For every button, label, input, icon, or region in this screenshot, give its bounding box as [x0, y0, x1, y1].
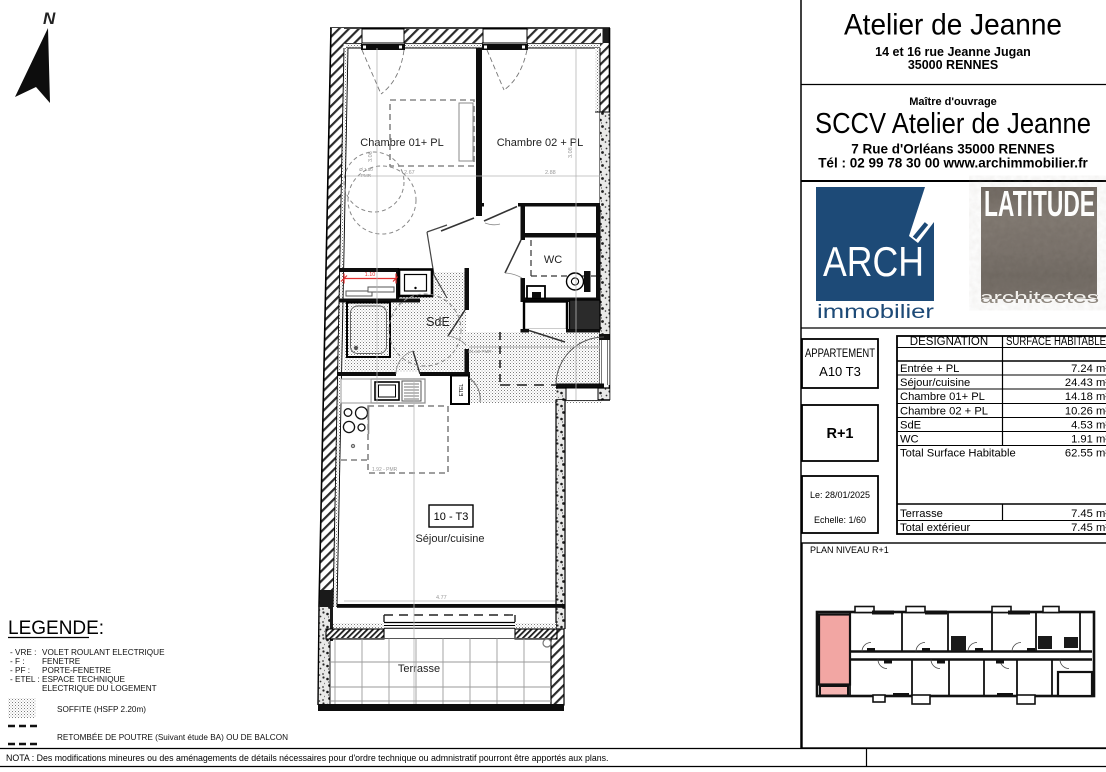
svg-text:24.43 m²: 24.43 m² [1065, 377, 1106, 389]
svg-text:LATITUDE: LATITUDE [984, 183, 1095, 224]
svg-text:SdE: SdE [900, 420, 921, 432]
svg-text:10 - T3: 10 - T3 [434, 511, 469, 523]
svg-text:1.91 m²: 1.91 m² [1071, 434, 1106, 446]
svg-text:SOFFITE (HSFP 2.20m): SOFFITE (HSFP 2.20m) [57, 705, 146, 714]
svg-text:RETOMBÉE DE POUTRE (Suivant ét: RETOMBÉE DE POUTRE (Suivant étude BA) OU… [57, 732, 288, 742]
svg-text:Total Surface Habitable: Total Surface Habitable [900, 448, 1016, 460]
svg-text:ESPACE TECHNIQUE: ESPACE TECHNIQUE [42, 675, 125, 684]
svg-text:7.45 m²: 7.45 m² [1071, 522, 1106, 534]
svg-text:7.45 m²: 7.45 m² [1071, 508, 1106, 520]
svg-text:immobilier: immobilier [817, 302, 935, 323]
svg-text:1.10: 1.10 [365, 272, 376, 278]
svg-text:VOLET ROULANT ELECTRIQUE: VOLET ROULANT ELECTRIQUE [42, 648, 165, 657]
svg-text:LEGENDE:: LEGENDE: [8, 618, 104, 639]
svg-text:Chambre 01+ PL: Chambre 01+ PL [360, 137, 443, 149]
svg-text:Séjour/cuisine: Séjour/cuisine [900, 377, 970, 389]
svg-text:WC: WC [544, 254, 562, 266]
svg-text:62.55 m²: 62.55 m² [1065, 448, 1106, 460]
svg-text:4.77: 4.77 [436, 595, 447, 601]
svg-text:14.18 m²: 14.18 m² [1065, 391, 1106, 403]
svg-text:14 et 16 rue Jeanne Jugan: 14 et 16 rue Jeanne Jugan [875, 45, 1031, 59]
svg-text:SCCV Atelier de Jeanne: SCCV Atelier de Jeanne [815, 108, 1091, 140]
svg-text:Entrée + PL: Entrée + PL [900, 363, 959, 375]
svg-text:SdE: SdE [426, 315, 450, 329]
svg-text:Tél : 02 99 78 30 00 www.archi: Tél : 02 99 78 30 00 www.archimmobilier.… [818, 156, 1088, 171]
svg-text:Chambre 02 + PL: Chambre 02 + PL [900, 406, 988, 418]
svg-text:3.08: 3.08 [568, 147, 574, 158]
svg-text:2.67: 2.67 [404, 170, 415, 176]
svg-text:NOTA : Des modifications mineu: NOTA : Des modifications mineures ou des… [6, 753, 608, 763]
svg-text:7 Rue d'Orléans 35000 RENNES: 7 Rue d'Orléans 35000 RENNES [851, 142, 1055, 157]
svg-text:4.53 m²: 4.53 m² [1071, 420, 1106, 432]
svg-text:7.24 m²: 7.24 m² [1071, 363, 1106, 375]
svg-text:Ø 1.50: Ø 1.50 [359, 167, 373, 172]
svg-text:PMR: PMR [361, 173, 372, 178]
svg-text:Le: 28/01/2025: Le: 28/01/2025 [810, 490, 870, 500]
svg-text:- VRE :: - VRE : [10, 648, 36, 657]
svg-text:2.88: 2.88 [545, 170, 556, 176]
svg-text:Echelle: 1/60: Echelle: 1/60 [814, 515, 866, 525]
svg-text:PLAN NIVEAU R+1: PLAN NIVEAU R+1 [810, 545, 889, 555]
svg-text:Terrasse: Terrasse [900, 508, 943, 520]
svg-text:Maître d'ouvrage: Maître d'ouvrage [909, 96, 997, 108]
svg-text:- F :: - F : [10, 657, 25, 666]
svg-text:PORTE-FENETRE: PORTE-FENETRE [42, 666, 112, 675]
svg-text:Terrasse: Terrasse [398, 663, 440, 675]
svg-text:N: N [43, 9, 56, 28]
svg-text:1.92 - PMR: 1.92 - PMR [372, 467, 398, 473]
svg-text:Chambre 02 + PL: Chambre 02 + PL [497, 137, 584, 149]
svg-text:A10 T3: A10 T3 [819, 364, 861, 379]
svg-text:3.06: 3.06 [368, 151, 374, 162]
svg-text:- ETEL :: - ETEL : [10, 675, 40, 684]
svg-text:APPARTEMENT: APPARTEMENT [805, 348, 875, 360]
svg-text:Atelier de Jeanne: Atelier de Jeanne [844, 9, 1062, 42]
svg-text:DESIGNATION: DESIGNATION [910, 336, 988, 348]
svg-text:WC: WC [900, 434, 919, 446]
svg-text:FENETRE: FENETRE [42, 657, 81, 666]
svg-text:ETEL: ETEL [459, 384, 465, 397]
svg-text:ARCH: ARCH [823, 238, 924, 285]
svg-text:Chambre 01+ PL: Chambre 01+ PL [900, 391, 985, 403]
svg-text:35000 RENNES: 35000 RENNES [908, 58, 998, 72]
svg-text:Séjour/cuisine: Séjour/cuisine [415, 533, 484, 545]
svg-text:10.26 m²: 10.26 m² [1065, 406, 1106, 418]
svg-text:- PF :: - PF : [10, 666, 30, 675]
svg-text:Total extérieur: Total extérieur [900, 522, 971, 534]
svg-text:ELECTRIQUE DU LOGEMENT: ELECTRIQUE DU LOGEMENT [42, 684, 157, 693]
svg-text:SURFACE HABITABLE: SURFACE HABITABLE [1006, 336, 1106, 348]
svg-text:R+1: R+1 [826, 426, 853, 442]
svg-text:Ø1.50 PMR: Ø1.50 PMR [468, 349, 492, 354]
